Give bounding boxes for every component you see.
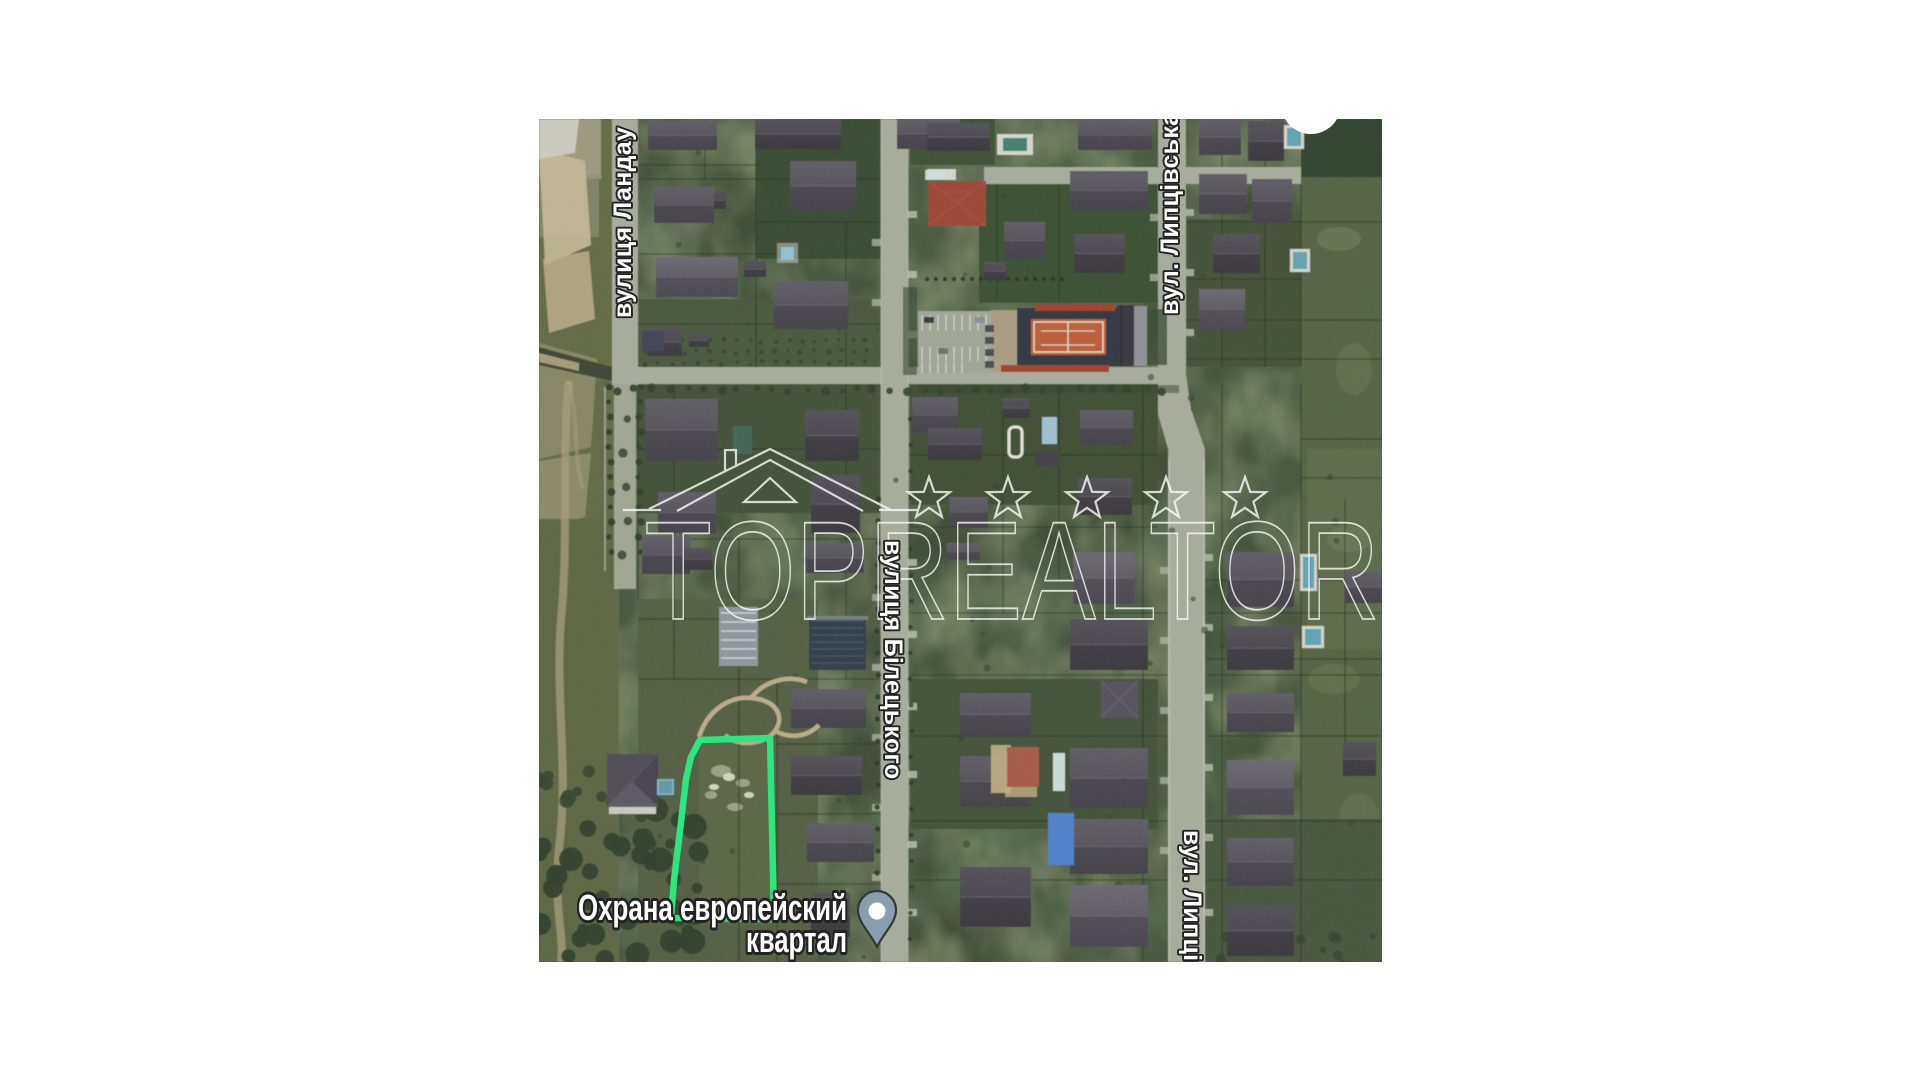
svg-text:TOPREALTOR: TOPREALTOR xyxy=(645,492,1380,649)
svg-text:вул. Липцівська: вул. Липцівська xyxy=(1156,119,1184,315)
svg-text:вулиця Ландау: вулиця Ландау xyxy=(609,127,637,318)
svg-text:вул. Липцівська: вул. Липцівська xyxy=(1178,830,1206,962)
svg-text:квартал: квартал xyxy=(746,919,847,960)
svg-text:вулиця Білецького: вулиця Білецького xyxy=(879,540,907,780)
